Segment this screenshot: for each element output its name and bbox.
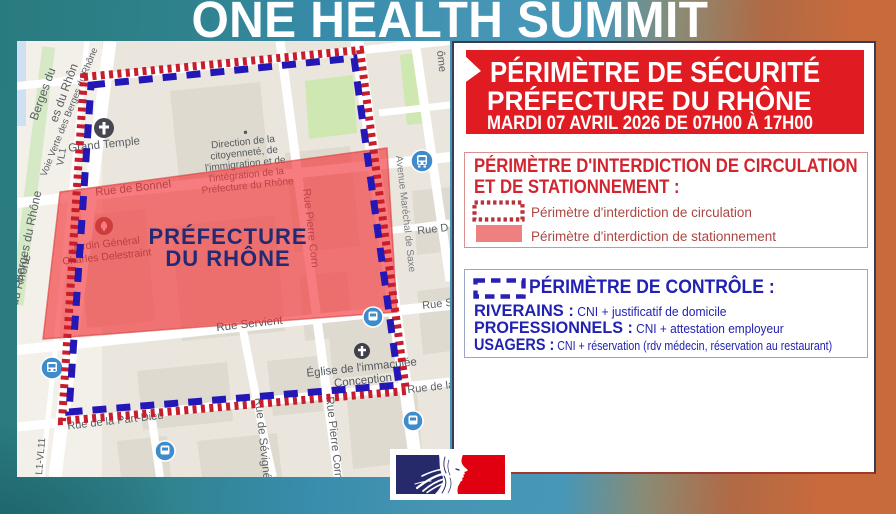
svg-text:ôme: ôme: [434, 50, 448, 73]
svg-text:DU RHÔNE: DU RHÔNE: [165, 246, 290, 271]
